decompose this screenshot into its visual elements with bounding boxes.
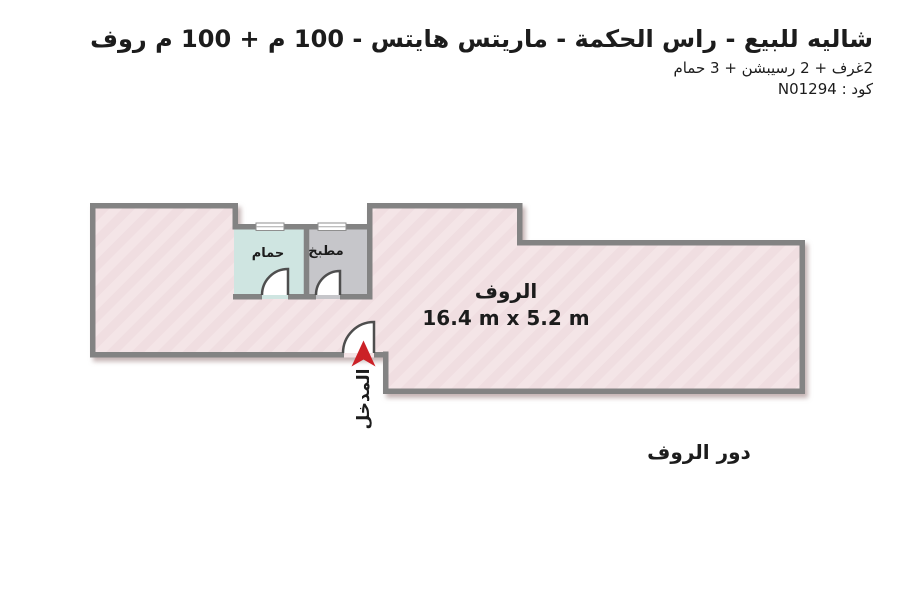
roof-room-dimensions: 16.4 m x 5.2 m: [406, 306, 606, 330]
floor-plan-page: شاليه للبيع - راس الحكمة - ماريتس هايتس …: [0, 0, 900, 599]
plan-code: كود : N01294: [778, 80, 873, 98]
floor-name-label: دور الروف: [619, 440, 779, 464]
roof-room-label: الروف: [446, 279, 566, 303]
kitchen-window-icon: [318, 223, 346, 231]
plan-subtitle: 2غرف + 2 رسيبشن + 3 حمام: [673, 59, 873, 77]
bathroom-label: حمام: [236, 246, 300, 261]
entrance-label: المدخل: [354, 364, 376, 434]
bathroom-window-icon: [256, 223, 284, 231]
kitchen-label: مطبخ: [294, 244, 358, 259]
plan-title: شاليه للبيع - راس الحكمة - ماريتس هايتس …: [90, 25, 873, 53]
